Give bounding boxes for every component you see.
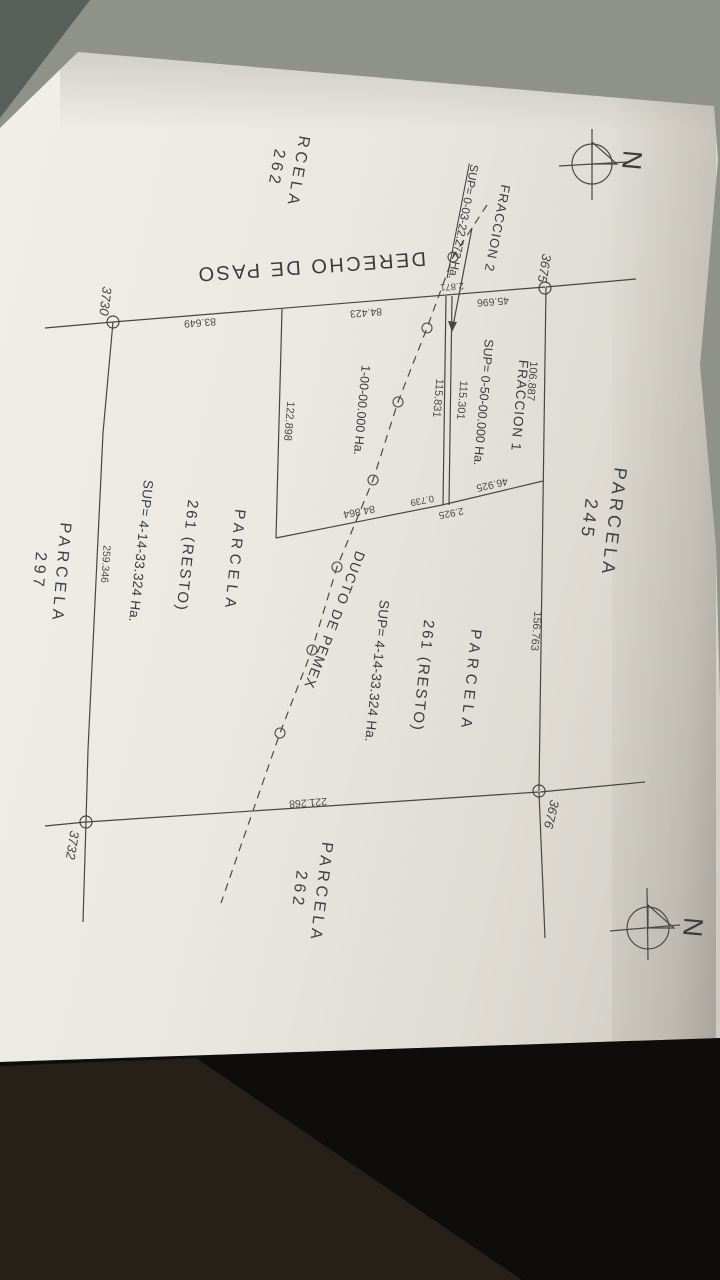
dim-83-649: 83.649	[183, 313, 216, 330]
north-boundary-line	[45, 287, 545, 328]
parcela-261-title: PARCELA	[216, 489, 254, 634]
fraccion-1-area: SUP= 0-50-00.000 Ha.	[469, 339, 496, 467]
label-parcela-261-west: PARCELA 261 (RESTO) SUP= 4-14-33.324 Ha.	[98, 476, 279, 636]
north-arrow-icon	[610, 888, 680, 960]
boundary-extension-ne	[546, 279, 636, 287]
boundary-extension-se	[540, 782, 645, 792]
fraccion-2-title: FRACCION 2	[478, 169, 516, 287]
dim-2-871: 2.871	[440, 278, 465, 293]
parcela-261-title: PARCELA	[452, 609, 490, 754]
west-boundary-line	[83, 322, 113, 922]
dim-84-423: 84.423	[349, 303, 382, 320]
dim-259-346: 259.346	[96, 545, 113, 584]
dim-221-268: 221.268	[289, 793, 328, 810]
station-3730: 3730	[94, 286, 116, 317]
fraccion-2-area: SUP= 0-03-22.272 Ha.	[444, 163, 480, 280]
photo-of-survey-plan: PARCELA 245 RCELA 262 PARCELA 297 PARCEL…	[0, 0, 720, 1280]
north-label-top: N	[611, 149, 650, 172]
fraccion2-leader-arrowhead	[448, 321, 457, 332]
north-label-bottom: N	[672, 916, 711, 939]
south-fraction-line	[276, 481, 543, 538]
parcela-261-number: 261 (RESTO)	[168, 484, 206, 629]
label-parcela-297: PARCELA 297	[22, 519, 75, 624]
label-parcela-261-east: PARCELA 261 (RESTO) SUP= 4-14-33.324 Ha.	[334, 596, 515, 756]
parcela-261-number: 261 (RESTO)	[404, 604, 442, 749]
parcela-261-area: SUP= 4-14-33.324 Ha.	[358, 599, 394, 743]
dim-45-696: 45.696	[476, 292, 509, 309]
parcela-261-area: SUP= 4-14-33.324 Ha.	[122, 479, 158, 623]
